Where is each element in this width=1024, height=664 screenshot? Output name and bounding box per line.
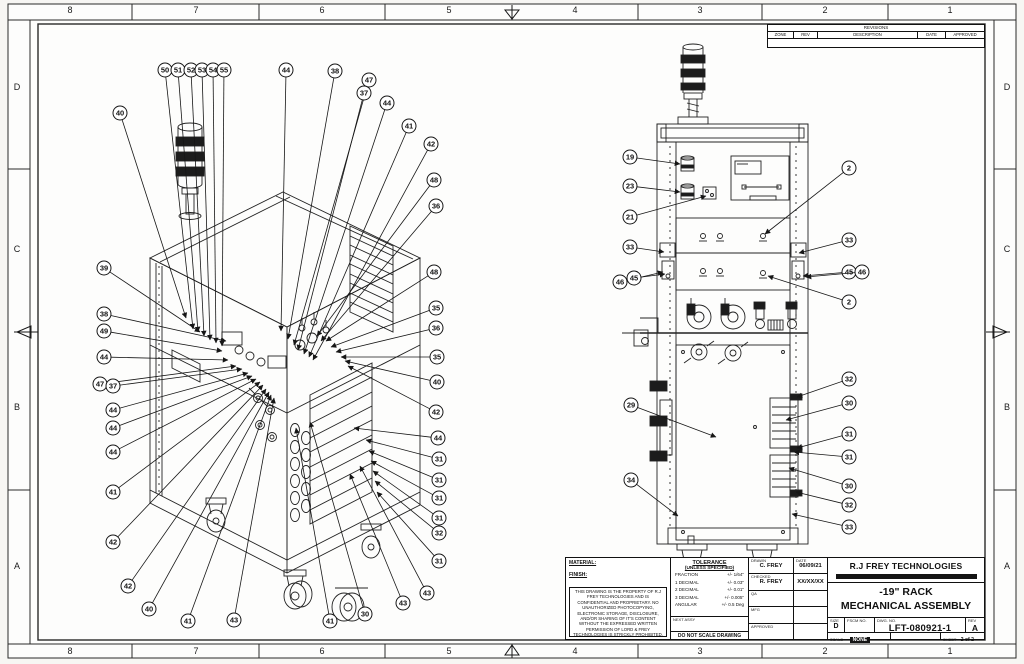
balloon-44: 44 [106, 373, 248, 417]
svg-text:41: 41 [326, 617, 334, 626]
svg-text:45: 45 [845, 268, 853, 277]
balloon-2: 2 [765, 161, 856, 234]
approval-date: XX/XX/XX [794, 579, 827, 585]
revisions-col-description: DESCRIPTION [818, 32, 918, 38]
svg-text:2: 2 [847, 164, 851, 173]
revisions-title: REVISIONS [768, 25, 984, 32]
approval-label: QA [749, 591, 793, 596]
approval-row-mfg: MFG [749, 607, 827, 623]
svg-text:30: 30 [845, 482, 853, 491]
svg-text:36: 36 [432, 324, 440, 333]
zone-label: 8 [60, 5, 80, 15]
svg-text:41: 41 [405, 122, 413, 131]
svg-text:46: 46 [858, 268, 866, 277]
zone-label: 7 [186, 5, 206, 15]
balloon-54: 54 [206, 63, 220, 343]
approval-row-qa: QA [749, 591, 827, 607]
svg-text:31: 31 [435, 455, 443, 464]
zone-row-label: C [9, 244, 25, 254]
tolerance-row-value: +/- 0.03" [727, 579, 744, 587]
rev-cell: REV A [965, 617, 985, 633]
balloon-34: 34 [624, 473, 678, 516]
svg-text:34: 34 [627, 476, 636, 485]
svg-text:21: 21 [626, 213, 634, 222]
zone-label: 1 [940, 5, 960, 15]
svg-text:44: 44 [282, 66, 291, 75]
tolerance-row-value: +/- 0.5 Deg [722, 601, 744, 609]
balloon-44: 44 [354, 428, 445, 445]
balloon-36: 36 [321, 199, 443, 341]
balloon-23: 23 [623, 179, 680, 193]
svg-text:33: 33 [626, 243, 634, 252]
zone-label: 8 [60, 646, 80, 656]
svg-text:30: 30 [845, 399, 853, 408]
svg-text:19: 19 [626, 153, 634, 162]
revisions-table: REVISIONS ZONE REV DESCRIPTION DATE APPR… [767, 24, 985, 48]
revisions-col-approved: APPROVED [946, 32, 984, 38]
svg-text:44: 44 [434, 434, 443, 443]
svg-text:33: 33 [845, 523, 853, 532]
svg-text:38: 38 [100, 310, 108, 319]
balloon-42: 42 [313, 137, 438, 360]
balloon-33: 33 [792, 514, 856, 534]
svg-text:46: 46 [616, 278, 624, 287]
balloon-44: 44 [279, 63, 293, 331]
svg-text:50: 50 [161, 66, 169, 75]
tolerance-row-name: ANGULAR [675, 601, 697, 609]
svg-text:32: 32 [845, 375, 853, 384]
svg-text:45: 45 [630, 274, 638, 283]
svg-text:44: 44 [383, 99, 392, 108]
balloon-48: 48 [326, 265, 441, 341]
tolerance-row-value: +/- 1/64" [727, 571, 744, 579]
balloon-40: 40 [345, 361, 444, 389]
svg-text:38: 38 [331, 67, 339, 76]
zone-row-label: D [999, 82, 1015, 92]
balloon-38: 38 [97, 307, 226, 341]
svg-text:53: 53 [198, 66, 206, 75]
balloon-33: 33 [623, 240, 664, 254]
svg-text:41: 41 [109, 488, 117, 497]
zone-row-label: D [9, 82, 25, 92]
balloon-35: 35 [341, 350, 444, 364]
approval-date: 06/09/21 [794, 563, 827, 569]
svg-text:42: 42 [109, 538, 117, 547]
approval-label: APPROVED [749, 624, 793, 629]
redacted-address-bar [836, 574, 977, 579]
balloon-41: 41 [181, 395, 271, 628]
zone-label: 6 [312, 5, 332, 15]
approval-row-checked: CHECKEDR. FREY XX/XX/XX [749, 574, 827, 590]
svg-text:48: 48 [430, 268, 438, 277]
drawing-viewer-page: 5051525354554438473744414248364039384944… [0, 0, 1024, 664]
svg-text:44: 44 [100, 353, 109, 362]
balloon-callouts-left: 5051525354554438473744414248364039384944… [93, 63, 446, 628]
svg-text:43: 43 [423, 589, 431, 598]
balloon-41: 41 [106, 382, 260, 499]
svg-text:52: 52 [187, 66, 195, 75]
svg-text:42: 42 [427, 140, 435, 149]
sheet-value: 2 of 2 [961, 637, 974, 643]
svg-text:48: 48 [430, 176, 438, 185]
balloon-19: 19 [623, 150, 680, 164]
zone-row-label: A [9, 561, 25, 571]
tolerance-row-value: +/- 0.01" [727, 586, 744, 594]
scale-label: SCALE [828, 636, 843, 642]
fold-marker-bottom [505, 644, 519, 658]
balloon-46: 46 [806, 265, 869, 279]
title-block: MATERIAL: FINISH: THIS DRAWING IS THE PR… [565, 557, 985, 640]
drawing-title-line2: MECHANICAL ASSEMBLY [828, 600, 984, 614]
svg-text:44: 44 [109, 448, 118, 457]
zone-label: 3 [690, 5, 710, 15]
tolerance-row-name: 3 DECIMAL [675, 594, 699, 602]
weight-cell [890, 632, 941, 640]
balloon-43: 43 [360, 466, 434, 600]
zone-label: 5 [439, 646, 459, 656]
balloon-44: 44 [304, 96, 394, 354]
svg-text:47: 47 [96, 380, 104, 389]
balloon-33: 33 [799, 233, 856, 253]
balloon-43: 43 [350, 474, 410, 610]
balloon-32: 32 [375, 481, 446, 540]
balloon-47: 47 [294, 73, 376, 345]
zone-label: 4 [565, 646, 585, 656]
zone-label: 2 [815, 5, 835, 15]
proprietary-notice: THIS DRAWING IS THE PROPERTY OF R.J FREY… [569, 587, 667, 637]
svg-text:40: 40 [116, 109, 124, 118]
approval-name: R. FREY [749, 579, 793, 585]
svg-text:31: 31 [435, 476, 443, 485]
sheet-cell: SHEET 2 of 2 [940, 632, 985, 640]
svg-text:40: 40 [433, 378, 441, 387]
zone-row-label: B [999, 402, 1015, 412]
zone-label: 3 [690, 646, 710, 656]
svg-text:42: 42 [432, 408, 440, 417]
zone-row-label: B [9, 402, 25, 412]
svg-text:37: 37 [360, 89, 368, 98]
balloon-44: 44 [97, 350, 228, 364]
svg-text:29: 29 [627, 401, 635, 410]
svg-text:35: 35 [433, 353, 441, 362]
svg-text:42: 42 [124, 582, 132, 591]
revisions-col-date: DATE [918, 32, 946, 38]
fscm-cell: FSCM NO. [844, 617, 875, 633]
fold-marker-right [986, 326, 1010, 338]
svg-text:35: 35 [432, 304, 440, 313]
svg-text:51: 51 [174, 66, 182, 75]
svg-text:31: 31 [845, 430, 853, 439]
material-label: MATERIAL: [566, 558, 670, 566]
balloon-32: 32 [797, 372, 856, 397]
balloon-43: 43 [227, 398, 274, 627]
rack-rear-view [622, 44, 808, 588]
scale-value: NONE [850, 637, 870, 643]
zone-label: 7 [186, 646, 206, 656]
svg-text:40: 40 [145, 605, 153, 614]
svg-text:31: 31 [435, 514, 443, 523]
svg-text:32: 32 [435, 529, 443, 538]
zone-label: 5 [439, 5, 459, 15]
approval-row-approved: APPROVED [749, 624, 827, 639]
balloon-31: 31 [794, 450, 856, 464]
caster-wheels-isometric [206, 498, 381, 621]
size-value: D [828, 623, 844, 630]
svg-text:41: 41 [184, 617, 192, 626]
tolerance-row-name: 1 DECIMAL [675, 579, 699, 587]
balloon-40: 40 [142, 392, 269, 616]
svg-text:37: 37 [109, 382, 117, 391]
zone-label: 4 [565, 5, 585, 15]
tolerance-row-name: FRACTION [675, 571, 698, 579]
stack-light-isometric [176, 123, 204, 220]
revisions-col-rev: REV [794, 32, 818, 38]
svg-text:36: 36 [432, 202, 440, 211]
svg-text:49: 49 [100, 327, 108, 336]
fold-marker-top [505, 5, 519, 20]
svg-text:39: 39 [100, 264, 108, 273]
zone-row-label: A [999, 561, 1015, 571]
approval-row-drawn: DRAWNC. FREY DATE06/09/21 [749, 558, 827, 574]
do-not-scale-note: DO NOT SCALE DRAWING [670, 631, 749, 640]
tolerance-row-value: +/- 0.005" [725, 594, 745, 602]
balloon-32: 32 [796, 492, 856, 512]
svg-text:55: 55 [220, 66, 228, 75]
material-finish-cell: MATERIAL: FINISH: THIS DRAWING IS THE PR… [565, 557, 671, 640]
zone-row-label: C [999, 244, 1015, 254]
balloon-29: 29 [624, 398, 716, 437]
balloon-55: 55 [217, 63, 231, 346]
approval-name: C. FREY [749, 563, 793, 569]
approval-label: MFG [749, 607, 793, 612]
svg-text:31: 31 [845, 453, 853, 462]
svg-text:44: 44 [109, 406, 118, 415]
svg-text:30: 30 [361, 610, 369, 619]
svg-text:32: 32 [845, 501, 853, 510]
company-name: R.J FREY TECHNOLOGIES [828, 558, 984, 571]
fold-marker-left [14, 326, 38, 338]
finish-label: FINISH: [566, 566, 670, 578]
tolerance-row-name: 2 DECIMAL [675, 586, 699, 594]
dwg-no-cell: DWG. NO. LFT-080921-1 [874, 617, 966, 633]
balloon-callouts-right: 19232123333464545462323029313130323334 [613, 150, 869, 534]
company-cell: R.J FREY TECHNOLOGIES [827, 557, 985, 583]
zone-label: 6 [312, 646, 332, 656]
scale-cell: SCALE NONE [827, 632, 891, 640]
svg-text:43: 43 [399, 599, 407, 608]
zone-label: 2 [815, 646, 835, 656]
next-assy-label: NEXT ASSY [671, 617, 748, 622]
balloon-42: 42 [106, 385, 263, 549]
next-assy-cell: NEXT ASSY [670, 616, 749, 632]
svg-text:33: 33 [845, 236, 853, 245]
svg-text:2: 2 [847, 298, 851, 307]
balloon-38: 38 [288, 64, 342, 339]
fscm-label: FSCM NO. [845, 618, 874, 623]
drawing-title-line1: -19" RACK [828, 586, 984, 600]
zone-label: 1 [940, 646, 960, 656]
approvals-grid: DRAWNC. FREY DATE06/09/21 CHECKEDR. FREY… [748, 557, 828, 640]
balloon-2: 2 [768, 276, 856, 309]
revisions-col-zone: ZONE [768, 32, 794, 38]
tolerance-block: TOLERANCE (UNLESS SPECIFIED) FRACTION+/-… [670, 557, 749, 617]
svg-text:23: 23 [626, 182, 634, 191]
balloon-21: 21 [623, 196, 706, 224]
balloon-40: 40 [113, 106, 186, 318]
stack-light-rear [678, 44, 708, 124]
svg-text:47: 47 [365, 76, 373, 85]
revisions-empty-row [768, 39, 984, 47]
svg-text:44: 44 [109, 424, 118, 433]
drawing-title-cell: -19" RACK MECHANICAL ASSEMBLY [827, 582, 985, 618]
balloon-39: 39 [97, 261, 200, 332]
svg-text:43: 43 [230, 616, 238, 625]
balloon-31: 31 [797, 427, 856, 448]
svg-text:31: 31 [435, 494, 443, 503]
svg-text:31: 31 [435, 557, 443, 566]
sheet-label: SHEET [941, 636, 956, 642]
balloon-30: 30 [789, 468, 856, 493]
tolerance-title: TOLERANCE [671, 558, 748, 566]
